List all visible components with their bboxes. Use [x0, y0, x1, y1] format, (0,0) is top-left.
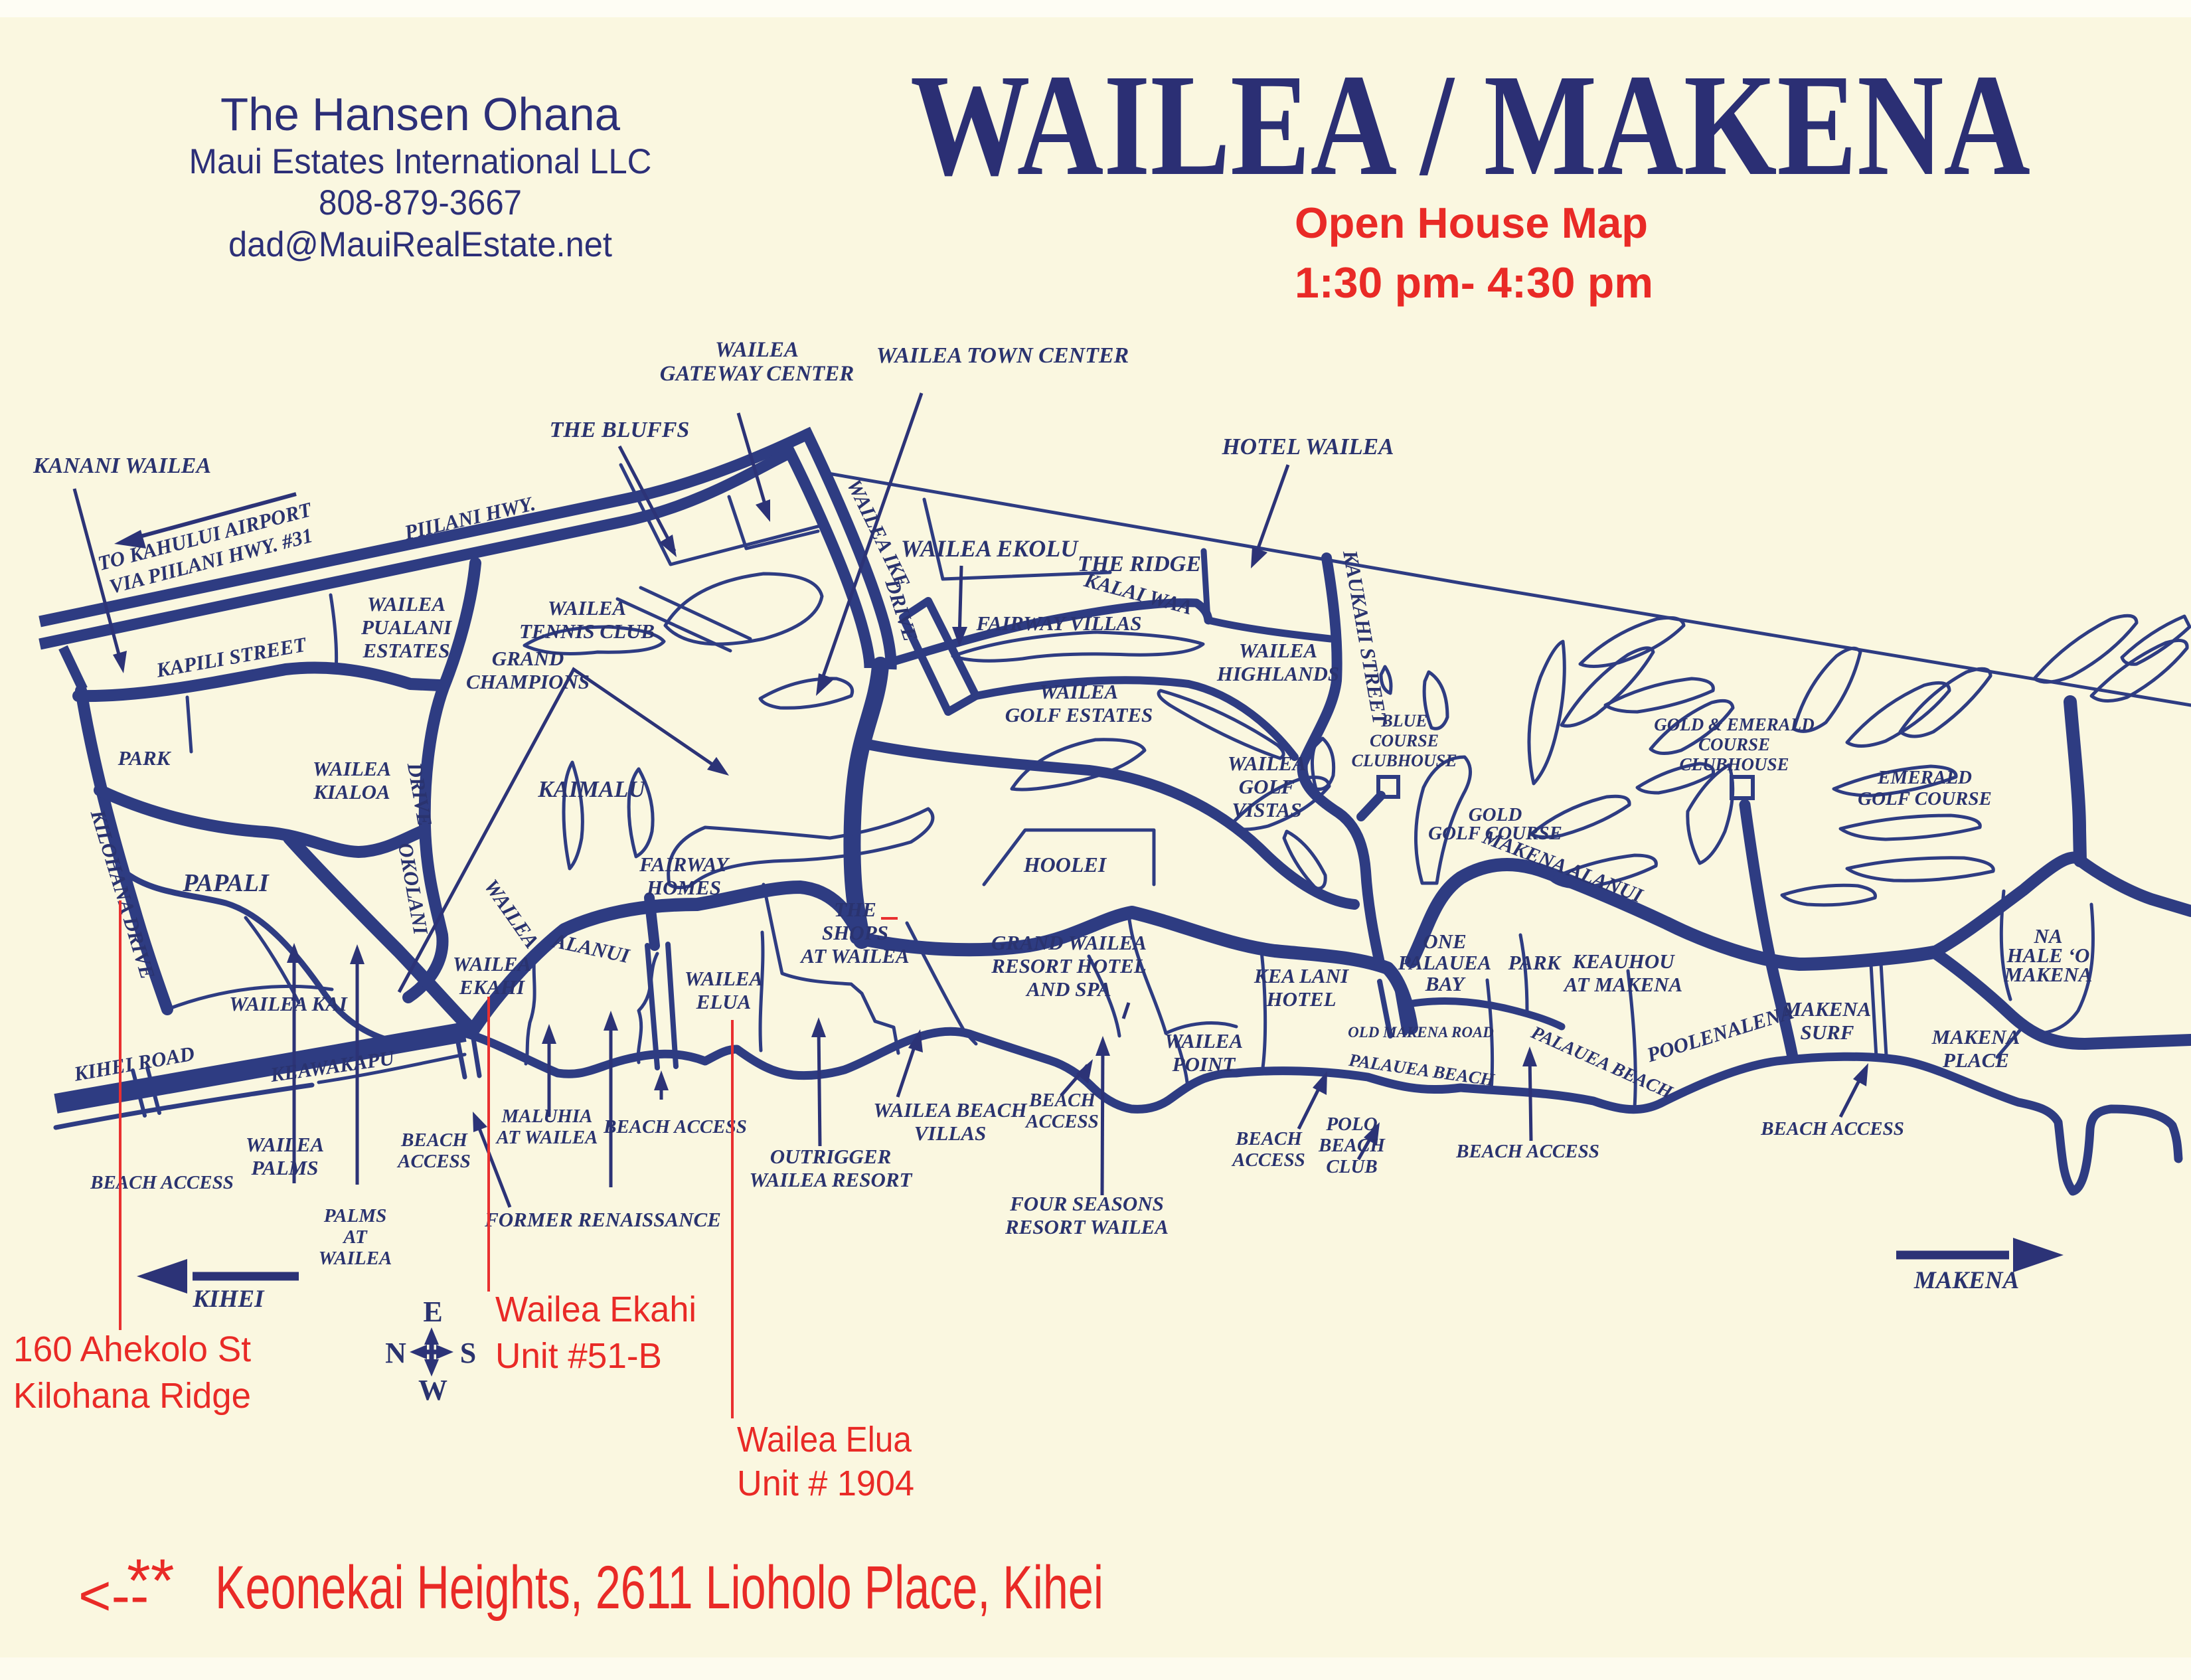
- svg-text:SHOPS: SHOPS: [822, 921, 888, 944]
- svg-text:N: N: [385, 1337, 406, 1369]
- svg-text:BLUE: BLUE: [1380, 711, 1427, 730]
- svg-text:Unit # 1904: Unit # 1904: [737, 1464, 914, 1503]
- svg-text:GRAND: GRAND: [492, 647, 564, 670]
- svg-text:WAILEA: WAILEA: [453, 952, 531, 975]
- svg-text:PUALANI: PUALANI: [361, 616, 452, 639]
- svg-text:VILLAS: VILLAS: [914, 1122, 987, 1145]
- svg-text:MAKENA: MAKENA: [1783, 997, 1872, 1021]
- svg-text:HOTEL: HOTEL: [1265, 987, 1336, 1011]
- svg-text:RESORT WAILEA: RESORT WAILEA: [1005, 1215, 1169, 1238]
- svg-text:BEACH: BEACH: [400, 1130, 468, 1151]
- svg-text:PARK: PARK: [118, 746, 172, 770]
- svg-text:EMERALD: EMERALD: [1877, 767, 1972, 788]
- svg-text:ONE: ONE: [1423, 930, 1466, 953]
- svg-text:TENNIS CLUB: TENNIS CLUB: [519, 620, 655, 643]
- svg-text:Unit #51-B: Unit #51-B: [495, 1336, 662, 1376]
- svg-text:WAILEA: WAILEA: [1228, 752, 1306, 775]
- svg-text:CLUBHOUSE: CLUBHOUSE: [1352, 751, 1457, 770]
- svg-text:WAILEA: WAILEA: [1040, 680, 1118, 703]
- svg-text:HOTEL WAILEA: HOTEL WAILEA: [1222, 434, 1394, 460]
- svg-text:WAILEA: WAILEA: [1239, 639, 1317, 662]
- svg-text:Wailea Ekahi: Wailea Ekahi: [495, 1290, 696, 1329]
- svg-text:ELUA: ELUA: [696, 990, 752, 1013]
- svg-text:GATEWAY CENTER: GATEWAY CENTER: [660, 362, 854, 386]
- svg-text:AND SPA: AND SPA: [1025, 977, 1111, 1001]
- svg-text:MALUHIA: MALUHIA: [501, 1106, 593, 1127]
- svg-text:BAY: BAY: [1425, 972, 1467, 995]
- svg-text:PLACE: PLACE: [1942, 1049, 2009, 1072]
- svg-text:WAILEA BEACH: WAILEA BEACH: [873, 1098, 1027, 1122]
- svg-text:WAILEA: WAILEA: [715, 338, 799, 362]
- svg-text:MAKENA: MAKENA: [1913, 1267, 2019, 1294]
- svg-text:WAILEA: WAILEA: [1165, 1029, 1243, 1052]
- svg-text:HIGHLANDS: HIGHLANDS: [1216, 662, 1339, 685]
- svg-text:The Hansen Ohana: The Hansen Ohana: [220, 88, 620, 140]
- svg-text:KANANI WAILEA: KANANI WAILEA: [33, 454, 211, 478]
- svg-text:ACCESS: ACCESS: [1231, 1149, 1305, 1171]
- svg-text:KEAUHOU: KEAUHOU: [1572, 950, 1675, 973]
- svg-text:WAILEA: WAILEA: [685, 967, 763, 990]
- svg-text:**: **: [127, 1547, 175, 1615]
- svg-text:WAILEA: WAILEA: [313, 757, 391, 780]
- svg-text:WAILEA EKOLU: WAILEA EKOLU: [901, 535, 1079, 562]
- svg-text:HOMES: HOMES: [646, 876, 721, 899]
- svg-text:GOLF: GOLF: [1239, 775, 1295, 798]
- svg-text:AT MAKENA: AT MAKENA: [1563, 973, 1682, 996]
- svg-text:MAKENA: MAKENA: [2004, 963, 2093, 986]
- svg-text:BEACH ACCESS: BEACH ACCESS: [1455, 1141, 1599, 1162]
- svg-text:WAILEA KAI: WAILEA KAI: [229, 992, 348, 1015]
- svg-text:THE: THE: [834, 898, 876, 921]
- svg-text:GOLF ESTATES: GOLF ESTATES: [1005, 703, 1153, 726]
- svg-text:OLD MAKENA ROAD: OLD MAKENA ROAD: [1348, 1024, 1494, 1041]
- svg-text:PALMS: PALMS: [250, 1156, 318, 1179]
- svg-text:FOUR SEASONS: FOUR SEASONS: [1009, 1192, 1164, 1215]
- svg-text:Open House Map: Open House Map: [1295, 199, 1648, 247]
- svg-text:BEACH ACCESS: BEACH ACCESS: [90, 1172, 234, 1193]
- svg-text:GRAND WAILEA: GRAND WAILEA: [991, 931, 1147, 954]
- svg-text:PARK: PARK: [1508, 951, 1562, 974]
- svg-text:FAIRWAY: FAIRWAY: [639, 853, 730, 876]
- svg-text:WAILEA: WAILEA: [246, 1133, 324, 1156]
- svg-text:E: E: [423, 1296, 442, 1328]
- svg-text:W: W: [418, 1374, 447, 1406]
- svg-text:AT WAILEA: AT WAILEA: [799, 944, 909, 967]
- svg-text:AT WAILEA: AT WAILEA: [495, 1127, 598, 1148]
- svg-text:160 Ahekolo St: 160 Ahekolo St: [13, 1329, 251, 1369]
- svg-text:ESTATES: ESTATES: [363, 639, 450, 662]
- svg-text:PALMS: PALMS: [323, 1205, 387, 1226]
- svg-text:BEACH: BEACH: [1235, 1128, 1303, 1149]
- svg-text:COURSE: COURSE: [1370, 731, 1439, 750]
- svg-text:POINT: POINT: [1172, 1052, 1236, 1076]
- svg-text:808-879-3667: 808-879-3667: [319, 183, 522, 222]
- svg-text:POLO: POLO: [1325, 1114, 1377, 1135]
- svg-text:BEACH: BEACH: [1318, 1135, 1386, 1156]
- svg-text:Keonekai Heights, 2611 Lioholo: Keonekai Heights, 2611 Lioholo Place, Ki…: [215, 1554, 1103, 1622]
- svg-text:S: S: [460, 1337, 476, 1369]
- svg-text:CLUB: CLUB: [1326, 1156, 1377, 1177]
- svg-text:KEA LANI: KEA LANI: [1254, 964, 1349, 987]
- svg-text:BEACH ACCESS: BEACH ACCESS: [603, 1116, 747, 1137]
- svg-text:WAILEA: WAILEA: [319, 1248, 392, 1269]
- svg-text:MAKENA: MAKENA: [1931, 1025, 2020, 1049]
- svg-text:SURF: SURF: [1801, 1021, 1854, 1044]
- svg-text:FORMER RENAISSANCE: FORMER RENAISSANCE: [484, 1208, 721, 1231]
- svg-text:WAILEA TOWN CENTER: WAILEA TOWN CENTER: [876, 343, 1129, 368]
- svg-text:RESORT HOTEL: RESORT HOTEL: [991, 954, 1146, 977]
- svg-text:HOOLEI: HOOLEI: [1023, 853, 1107, 877]
- svg-text:VISTAS: VISTAS: [1232, 798, 1301, 821]
- svg-text:ACCESS: ACCESS: [396, 1151, 471, 1172]
- svg-text:CHAMPIONS: CHAMPIONS: [466, 670, 590, 693]
- svg-text:FAIRWAY VILLAS: FAIRWAY VILLAS: [976, 612, 1142, 635]
- svg-text:ACCESS: ACCESS: [1024, 1111, 1099, 1132]
- svg-text:GOLD & EMERALD: GOLD & EMERALD: [1654, 714, 1815, 734]
- svg-text:PAPALI: PAPALI: [182, 869, 270, 897]
- svg-text:BEACH: BEACH: [1028, 1090, 1096, 1111]
- svg-text:KIALOA: KIALOA: [313, 780, 390, 803]
- svg-text:THE BLUFFS: THE BLUFFS: [550, 418, 690, 442]
- svg-text:WAILEA RESORT: WAILEA RESORT: [750, 1168, 913, 1191]
- svg-text:AT: AT: [342, 1226, 368, 1248]
- svg-text:PALAUEA: PALAUEA: [1398, 951, 1492, 974]
- svg-text:1:30 pm- 4:30 pm: 1:30 pm- 4:30 pm: [1295, 258, 1653, 307]
- svg-text:KIHEI: KIHEI: [193, 1286, 266, 1313]
- svg-text:Maui Estates International LLC: Maui Estates International LLC: [189, 142, 652, 181]
- svg-text:Kilohana Ridge: Kilohana Ridge: [13, 1376, 251, 1416]
- svg-text:GOLF COURSE: GOLF COURSE: [1428, 823, 1562, 844]
- svg-text:GOLF COURSE: GOLF COURSE: [1858, 788, 1992, 809]
- svg-text:WAILEA / MAKENA: WAILEA / MAKENA: [910, 44, 2030, 206]
- svg-text:dad@MauiRealEstate.net: dad@MauiRealEstate.net: [228, 225, 612, 264]
- svg-text:KAIMALU: KAIMALU: [537, 776, 646, 802]
- svg-text:COURSE: COURSE: [1698, 734, 1770, 754]
- svg-text:WAILEA: WAILEA: [367, 592, 446, 616]
- svg-text:OUTRIGGER: OUTRIGGER: [770, 1145, 892, 1168]
- svg-text:EKAHI: EKAHI: [459, 975, 525, 999]
- svg-text:BEACH ACCESS: BEACH ACCESS: [1760, 1118, 1904, 1139]
- svg-text:WAILEA: WAILEA: [548, 596, 626, 620]
- svg-text:CLUBHOUSE: CLUBHOUSE: [1679, 754, 1789, 774]
- svg-text:Wailea Elua: Wailea Elua: [737, 1420, 912, 1460]
